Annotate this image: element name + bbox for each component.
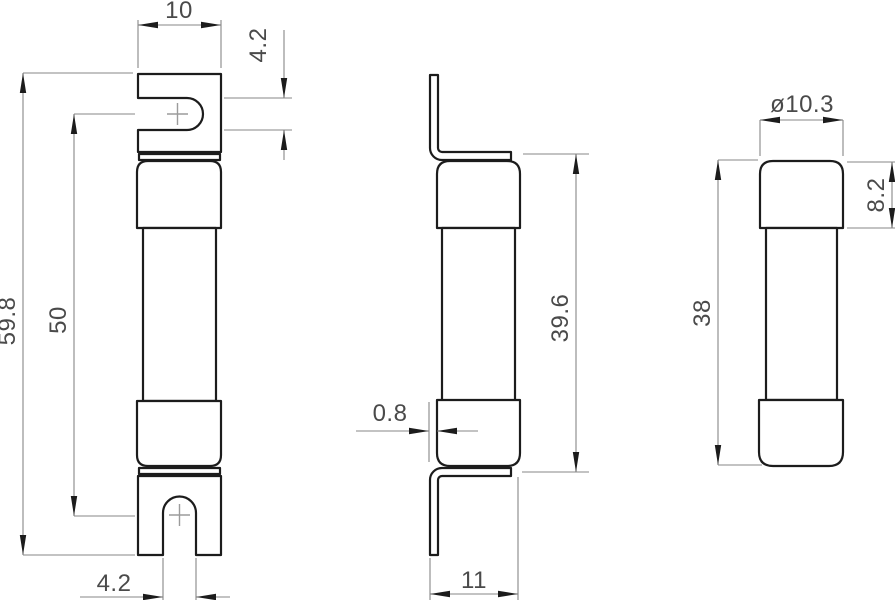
front-view — [137, 74, 221, 555]
dim-cap-height-label: 8.2 — [863, 178, 890, 213]
front-top-tab-edge — [139, 154, 220, 160]
dim-slot-height: 4.2 — [224, 28, 292, 160]
dim-overall-height-label: 59.8 — [0, 297, 21, 346]
dim-tab-thickness-label: 0.8 — [373, 400, 408, 427]
dim-cap-diameter: ø10.3 — [760, 91, 843, 156]
top-slot-center-mark — [167, 103, 188, 125]
front-bottom-cap — [137, 401, 221, 466]
side-top-terminal — [430, 75, 511, 160]
bottom-slot-center-mark — [169, 504, 190, 526]
dim-slot-width-label: 4.2 — [97, 570, 132, 597]
cartridge-bottom-cap — [759, 400, 843, 466]
front-bottom-tab-edge — [139, 468, 220, 474]
cartridge-top-cap — [760, 161, 843, 228]
side-top-cap — [437, 161, 520, 228]
side-bottom-cap — [437, 400, 520, 466]
dim-tab-width-label: 10 — [165, 0, 193, 24]
dim-cap-height: 8.2 — [847, 162, 895, 228]
technical-drawing-canvas: 10 4.2 59.8 50 4.2 — [0, 0, 895, 600]
cartridge-view — [759, 161, 843, 466]
cartridge-body-tube — [766, 228, 837, 400]
dim-body-height-label: 38 — [689, 299, 716, 327]
dim-overall-depth: 11 — [430, 477, 518, 600]
fuse-drawing-svg: 10 4.2 59.8 50 4.2 — [0, 0, 895, 600]
dim-slot-width: 4.2 — [80, 558, 230, 600]
front-body-tube — [143, 228, 216, 401]
side-bottom-terminal — [430, 468, 511, 555]
side-view — [430, 75, 520, 555]
dim-height-over-tabs: 39.6 — [522, 154, 589, 472]
dim-tab-width: 10 — [138, 0, 221, 68]
dim-slot-spacing-label: 50 — [45, 306, 72, 334]
dim-slot-height-label: 4.2 — [245, 28, 272, 63]
dim-body-height: 38 — [689, 160, 762, 465]
dim-slot-spacing: 50 — [45, 114, 135, 516]
front-top-cap — [137, 161, 221, 228]
dim-overall-depth-label: 11 — [461, 567, 487, 594]
dim-height-over-tabs-label: 39.6 — [547, 294, 574, 343]
side-body-tube — [442, 228, 515, 401]
front-top-terminal — [138, 74, 221, 152]
dim-cap-diameter-label: ø10.3 — [770, 91, 834, 118]
